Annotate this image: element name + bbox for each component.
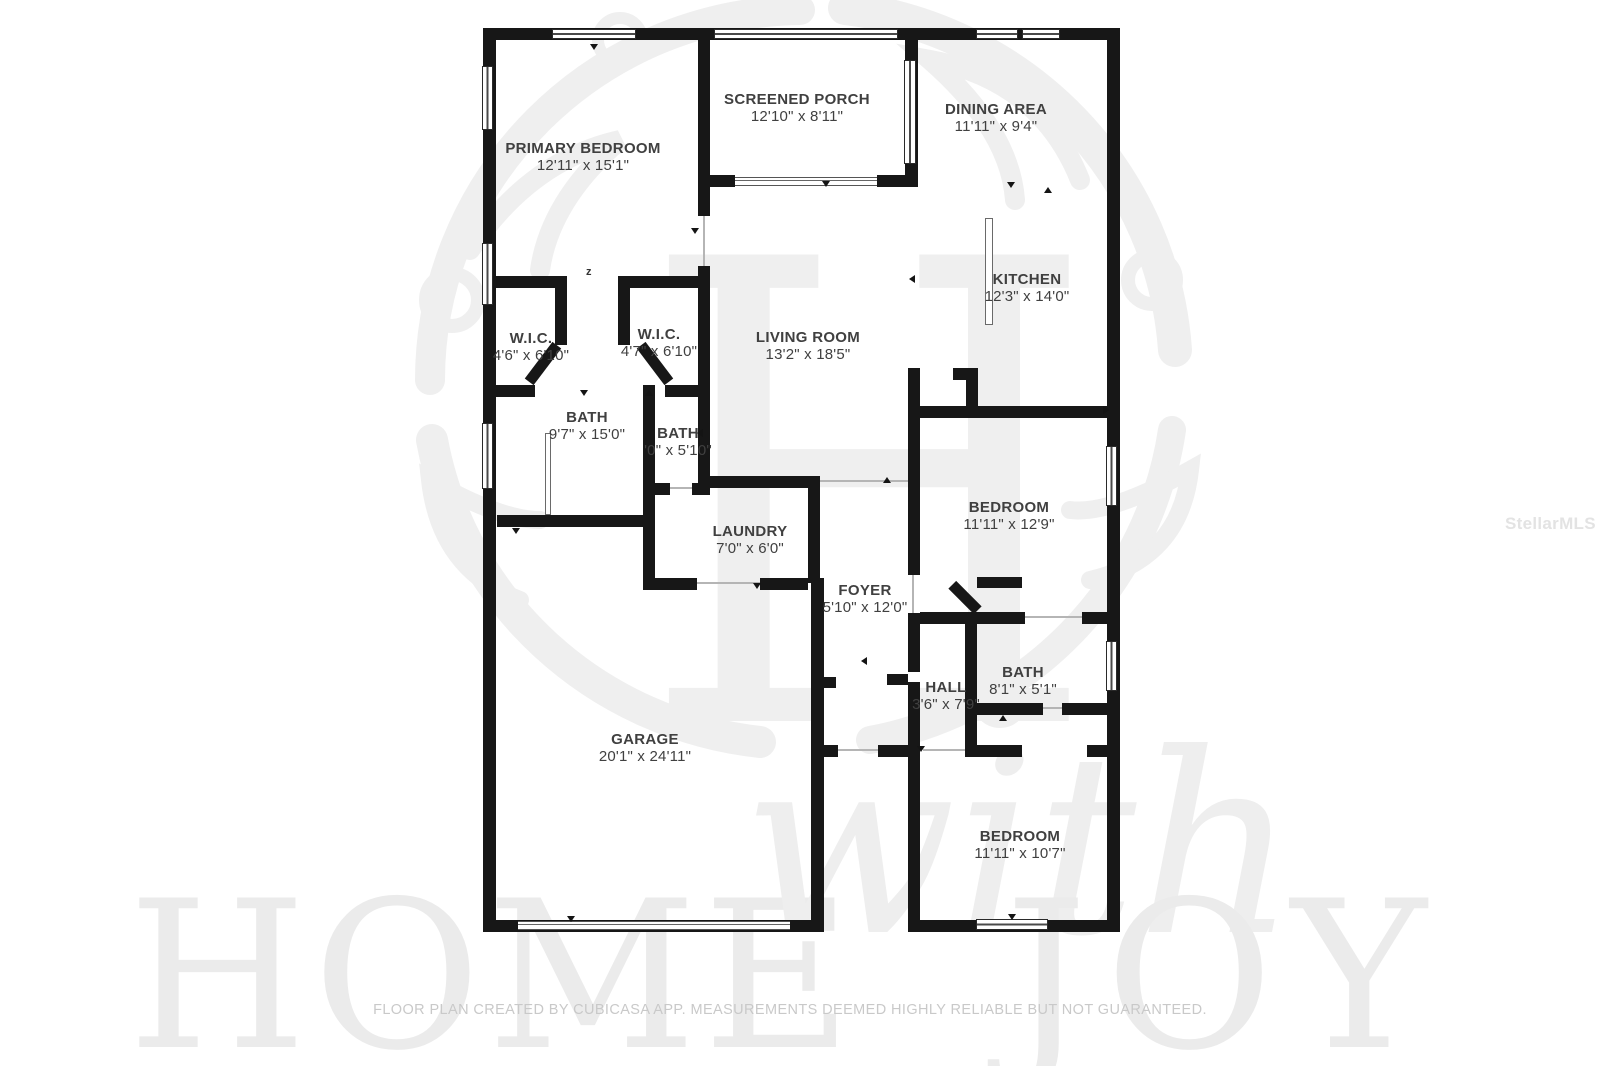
room-name: DINING AREA <box>945 101 1047 118</box>
room-name: BATH <box>989 664 1057 681</box>
room-dimensions: 7'0" x 6'0" <box>713 540 788 557</box>
room-label-bedroom-mid: BEDROOM11'11" x 12'9" <box>963 499 1054 533</box>
room-label-living-room: LIVING ROOM13'2" x 18'5" <box>756 329 860 363</box>
room-label-garage: GARAGE20'1" x 24'11" <box>599 731 691 765</box>
room-dimensions: 4'7" x 6'10" <box>621 343 697 360</box>
room-dimensions: 8'1" x 5'1" <box>989 681 1057 698</box>
room-label-bedroom-bottom: BEDROOM11'11" x 10'7" <box>974 828 1065 862</box>
room-name: W.I.C. <box>621 326 697 343</box>
room-dimensions: 12'11" x 15'1" <box>505 157 660 174</box>
room-dimensions: 12'10" x 8'11" <box>724 108 870 125</box>
room-label-foyer: FOYER5'10" x 12'0" <box>823 582 908 616</box>
room-label-wic-right: W.I.C.4'7" x 6'10" <box>621 326 697 360</box>
room-label-dining-area: DINING AREA11'11" x 9'4" <box>945 101 1047 135</box>
room-dimensions: 11'11" x 9'4" <box>945 118 1047 135</box>
room-dimensions: 3'6" x 7'9" <box>912 696 980 713</box>
room-name: W.I.C. <box>493 330 569 347</box>
room-label-primary-bedroom: PRIMARY BEDROOM12'11" x 15'1" <box>505 140 660 174</box>
room-labels: SCREENED PORCH12'10" x 8'11"DINING AREA1… <box>0 0 1600 1066</box>
room-name: LAUNDRY <box>713 523 788 540</box>
room-label-kitchen: KITCHEN12'3" x 14'0" <box>985 271 1070 305</box>
room-dimensions: 5'10" x 12'0" <box>823 599 908 616</box>
floor-plan-page: H HOME with JOY StellarMLS z <box>0 0 1600 1066</box>
room-label-laundry: LAUNDRY7'0" x 6'0" <box>713 523 788 557</box>
room-name: LIVING ROOM <box>756 329 860 346</box>
room-name: HALL <box>912 679 980 696</box>
room-name: GARAGE <box>599 731 691 748</box>
room-name: SCREENED PORCH <box>724 91 870 108</box>
room-label-bath-3: BATH8'1" x 5'1" <box>989 664 1057 698</box>
room-name: BATH <box>644 425 712 442</box>
room-dimensions: 20'1" x 24'11" <box>599 748 691 765</box>
room-dimensions: 12'3" x 14'0" <box>985 288 1070 305</box>
room-dimensions: '0" x 5'10" <box>644 442 712 459</box>
room-label-hall: HALL3'6" x 7'9" <box>912 679 980 713</box>
room-dimensions: 4'6" x 6'10" <box>493 347 569 364</box>
room-name: BEDROOM <box>974 828 1065 845</box>
room-label-wic-left: W.I.C.4'6" x 6'10" <box>493 330 569 364</box>
room-label-screened-porch: SCREENED PORCH12'10" x 8'11" <box>724 91 870 125</box>
room-label-primary-bath: BATH9'7" x 15'0" <box>549 409 625 443</box>
room-name: KITCHEN <box>985 271 1070 288</box>
room-name: FOYER <box>823 582 908 599</box>
room-name: BEDROOM <box>963 499 1054 516</box>
room-name: BATH <box>549 409 625 426</box>
room-dimensions: 13'2" x 18'5" <box>756 346 860 363</box>
room-name: PRIMARY BEDROOM <box>505 140 660 157</box>
room-label-bath-2: BATH'0" x 5'10" <box>644 425 712 459</box>
disclaimer-footer: FLOOR PLAN CREATED BY CUBICASA APP. MEAS… <box>0 1002 1580 1018</box>
room-dimensions: 11'11" x 12'9" <box>963 516 1054 533</box>
room-dimensions: 11'11" x 10'7" <box>974 845 1065 862</box>
room-dimensions: 9'7" x 15'0" <box>549 426 625 443</box>
